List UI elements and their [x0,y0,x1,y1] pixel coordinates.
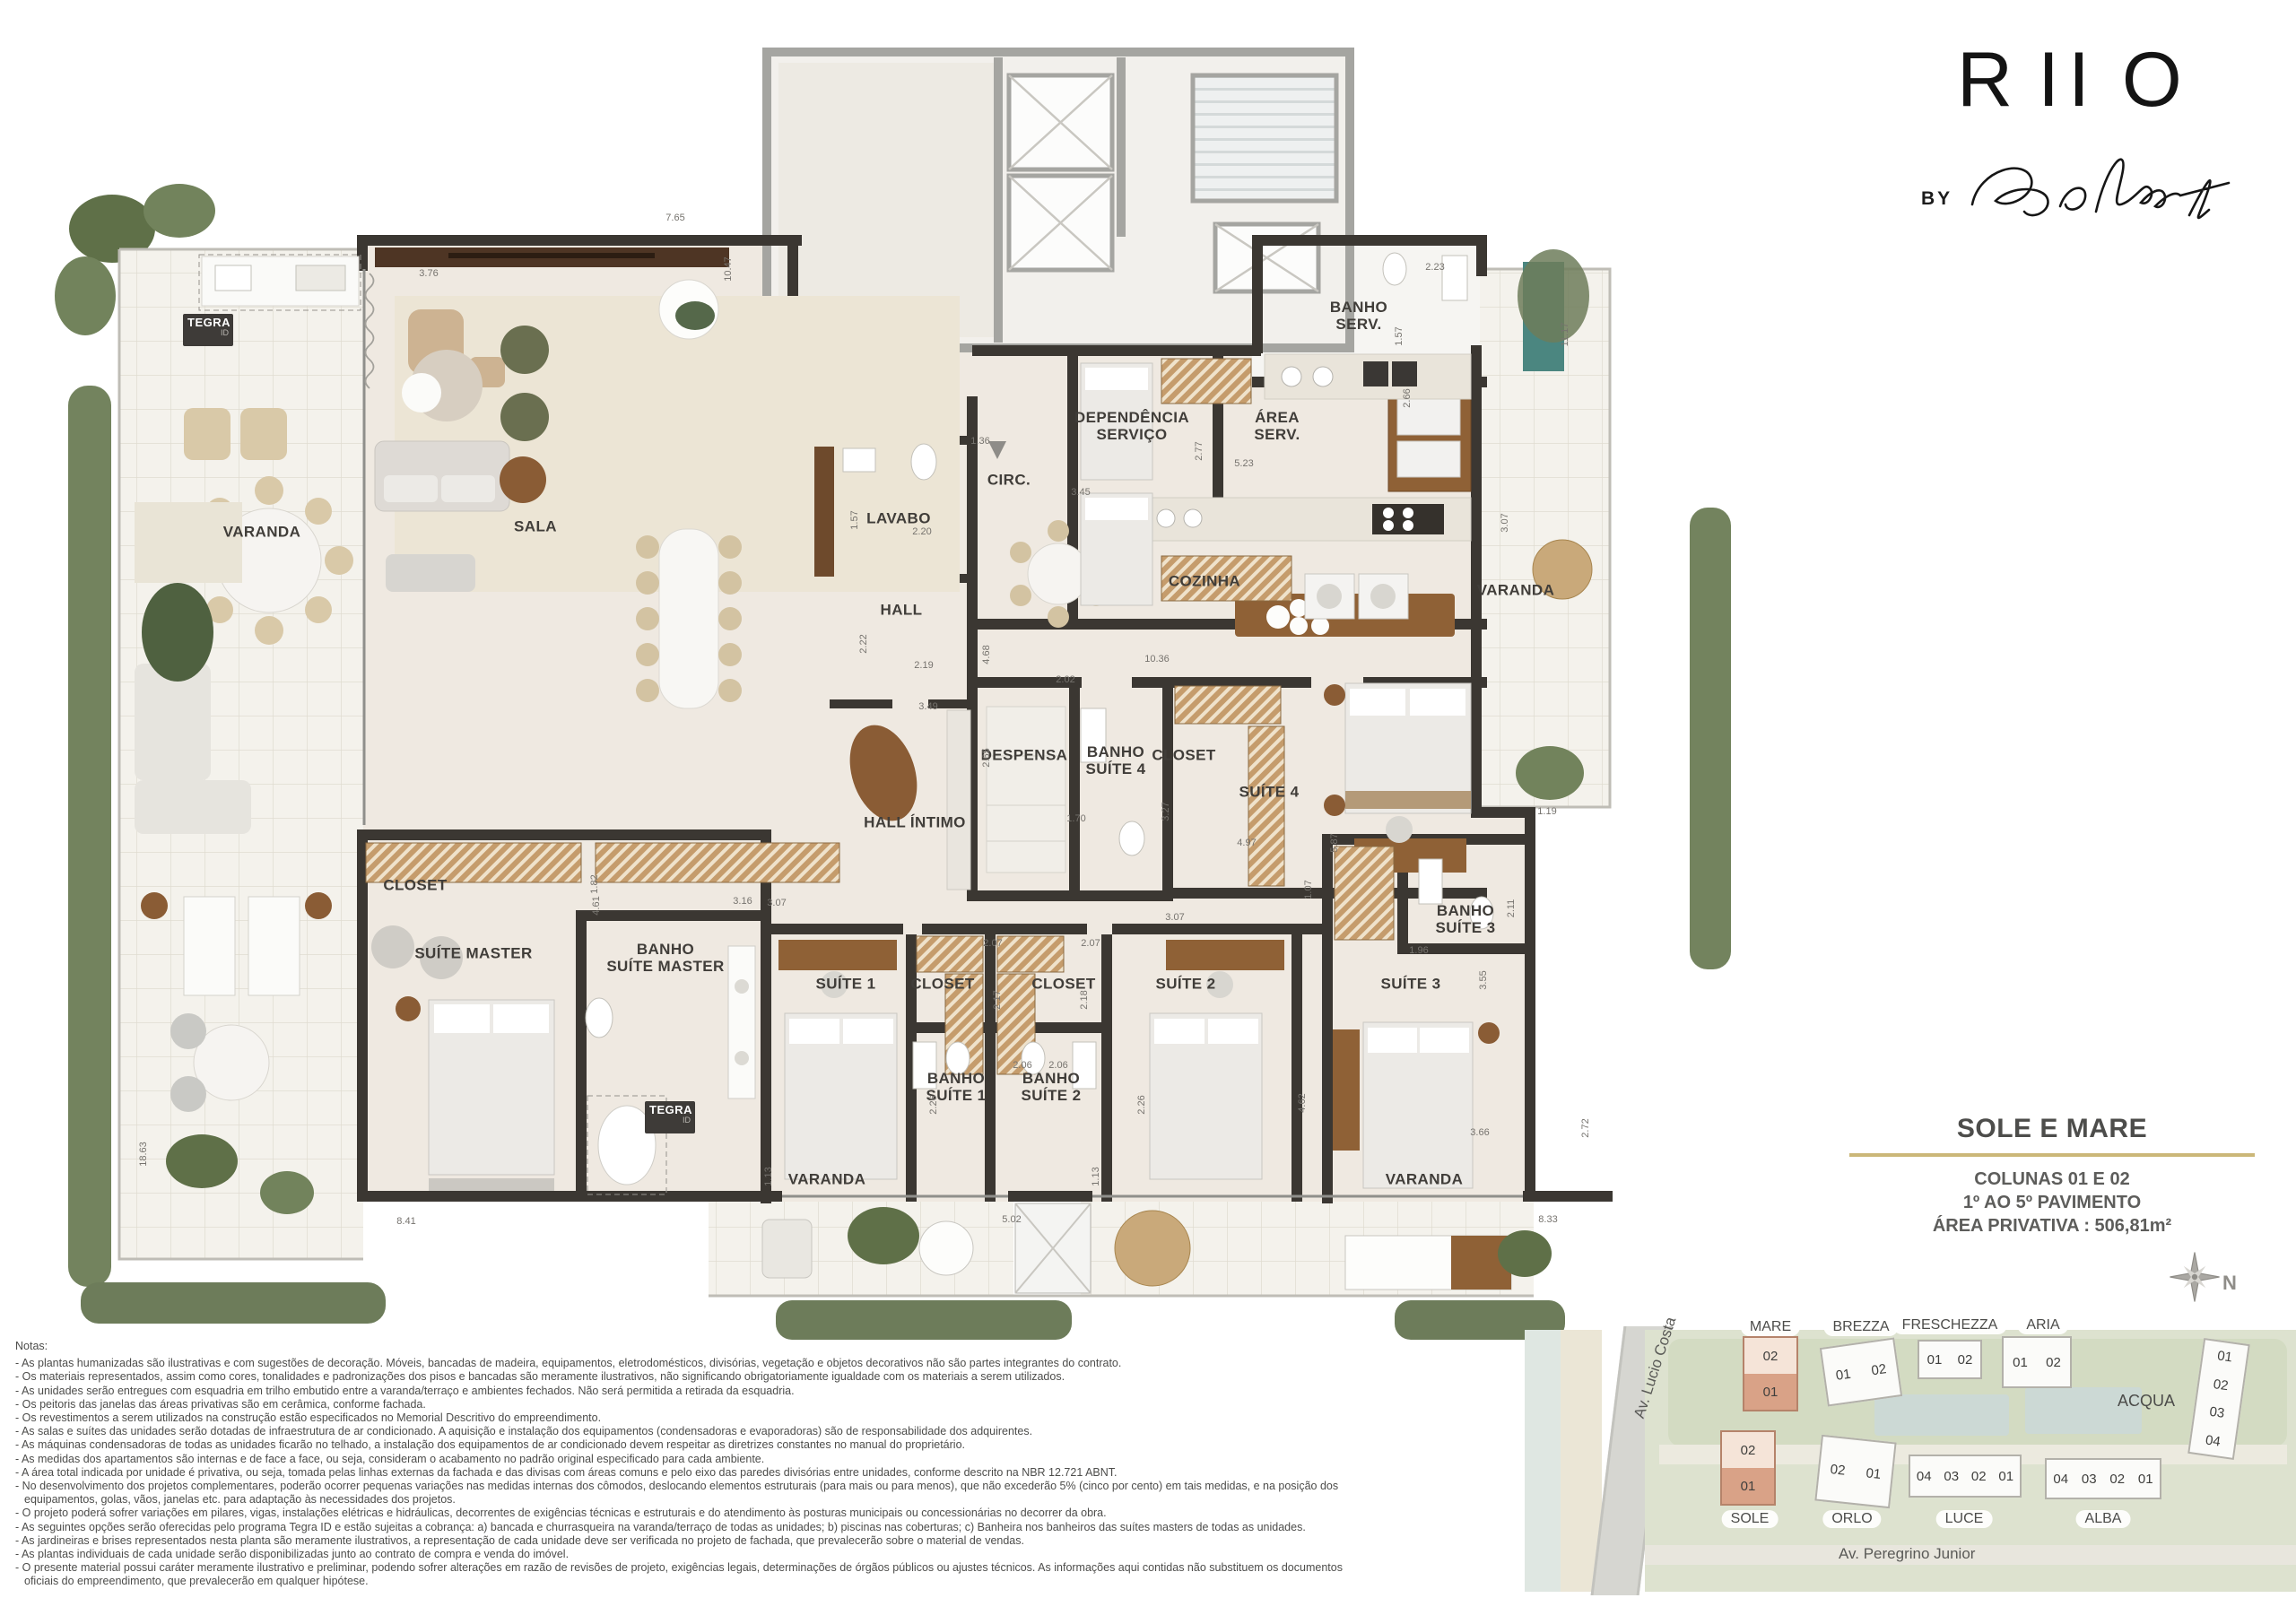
logo-letter-o: O [2122,36,2184,125]
unit-number: 02 [2109,1472,2125,1487]
project-name: SOLE E MARE [1849,1114,2255,1144]
building-mare: 0201 [1743,1336,1798,1411]
unit-number: 01 [2138,1472,2153,1487]
unit-number: 01 [1927,1352,1943,1368]
note-item: - As plantas humanizadas são ilustrativa… [15,1357,1357,1370]
note-item: - No desenvolvimento dos projetos comple… [15,1480,1357,1507]
unit-number: 03 [2082,1472,2097,1487]
building-alba: 04030201 [2045,1458,2161,1499]
unit-number: 03 [1944,1469,1959,1484]
building-sole: 0201 [1720,1430,1776,1506]
unit-number: 01 [1835,1366,1852,1383]
note-item: - As unidades serão entregues com esquad… [15,1385,1357,1398]
compass-icon [2169,1251,2221,1303]
tegra-id-badge: TEGRA ID [183,314,233,346]
unit-number: 02 [1722,1432,1774,1468]
badge-id: ID [187,328,229,337]
note-item: - O projeto poderá sofrer variações em p… [15,1507,1357,1520]
floors-line: 1º AO 5º PAVIMENTO [1849,1191,2255,1214]
note-item: - As plantas individuais de cada unidade… [15,1548,1357,1561]
unit-number: 01 [2013,1355,2028,1370]
unit-number: 02 [1744,1338,1796,1374]
unit-number: 03 [2208,1404,2225,1421]
unit-number: 01 [1744,1374,1796,1410]
notes-block: Notas: - As plantas humanizadas são ilus… [15,1340,1357,1589]
building-brezza: 0102 [1820,1337,1902,1406]
tegra-id-badge: TEGRA ID [645,1101,695,1133]
building-label-alba: ALBA [2076,1510,2131,1528]
designer-signature [1960,133,2251,245]
unit-number: 02 [1830,1462,1846,1479]
unit-number: 01 [1998,1469,2013,1484]
unit-number: 04 [2053,1472,2068,1487]
logo-letter-r: R [1957,36,2014,125]
note-item: - Os revestimentos a serem utilizados na… [15,1411,1357,1425]
note-item: - As medidas dos apartamentos são intern… [15,1453,1357,1466]
notes-heading: Notas: [15,1340,1357,1353]
note-item: - O presente material possui caráter mer… [15,1561,1357,1588]
unit-number: 02 [1971,1469,1987,1484]
gold-rule [1849,1153,2255,1157]
note-item: - As salas e suítes das unidades serão d… [15,1425,1357,1438]
building-label-orlo: ORLO [1822,1510,1881,1528]
note-item: - As jardineiras e brises representados … [15,1534,1357,1548]
badge-id: ID [649,1116,691,1125]
unit-number: 04 [2205,1432,2222,1449]
note-item: - Os materiais representados, assim como… [15,1370,1357,1384]
building-label-freschezza: FRESCHEZZA [1893,1316,2007,1334]
building-label-brezza: BREZZA [1823,1318,1898,1336]
note-item: - A área total indicada por unidade é pr… [15,1466,1357,1480]
note-item: - As máquinas condensadoras de todas as … [15,1438,1357,1452]
logo-bars: II [2038,36,2099,125]
unit-number: 02 [2046,1355,2061,1370]
building-label-acqua: ACQUA [2109,1391,2184,1411]
building-label-aria: ARIA [2017,1316,2068,1334]
building-label-mare: MARE [1741,1318,1800,1336]
map-pool [1874,1394,2009,1436]
street-av-peregrino-junior: Av. Peregrino Junior [1839,1545,1975,1563]
building-luce: 04030201 [1909,1455,2022,1498]
columns-line: COLUNAS 01 E 02 [1849,1168,2255,1191]
building-aria: 0102 [2002,1336,2072,1388]
building-orlo: 0201 [1814,1435,1896,1508]
private-area-line: ÁREA PRIVATIVA : 506,81m² [1849,1214,2255,1238]
unit-number: 01 [1722,1468,1774,1504]
unit-number: 02 [1870,1361,1887,1378]
building-label-sole: SOLE [1722,1510,1779,1528]
by-label: BY [1921,188,1952,210]
unit-number: 04 [1917,1469,1932,1484]
note-item: - As seguintes opções serão oferecidas p… [15,1521,1357,1534]
notes-list: - As plantas humanizadas são ilustrativa… [15,1357,1357,1588]
unit-number: 01 [1865,1465,1882,1482]
badge-brand: TEGRA [649,1104,691,1116]
building-label-luce: LUCE [1936,1510,1993,1528]
note-item: - Os peitoris das janelas das áreas priv… [15,1398,1357,1411]
unit-number: 02 [1958,1352,1973,1368]
site-map: 0201 0201 0102 0102 0102 0201 04030201 0… [1525,1330,2296,1599]
riio-logo: RIIO [1957,36,2184,125]
unit-number: 01 [2216,1349,2233,1366]
title-block: SOLE E MARE COLUNAS 01 E 02 1º AO 5º PAV… [1849,1114,2255,1238]
badge-brand: TEGRA [187,317,229,328]
building-freschezza: 0102 [1918,1340,1982,1379]
compass-north-label: N [2222,1272,2237,1295]
unit-number: 02 [2213,1376,2230,1394]
page: VARANDASALACIRC.LAVABOHALLBANHO SERV.DEP… [0,0,2296,1624]
